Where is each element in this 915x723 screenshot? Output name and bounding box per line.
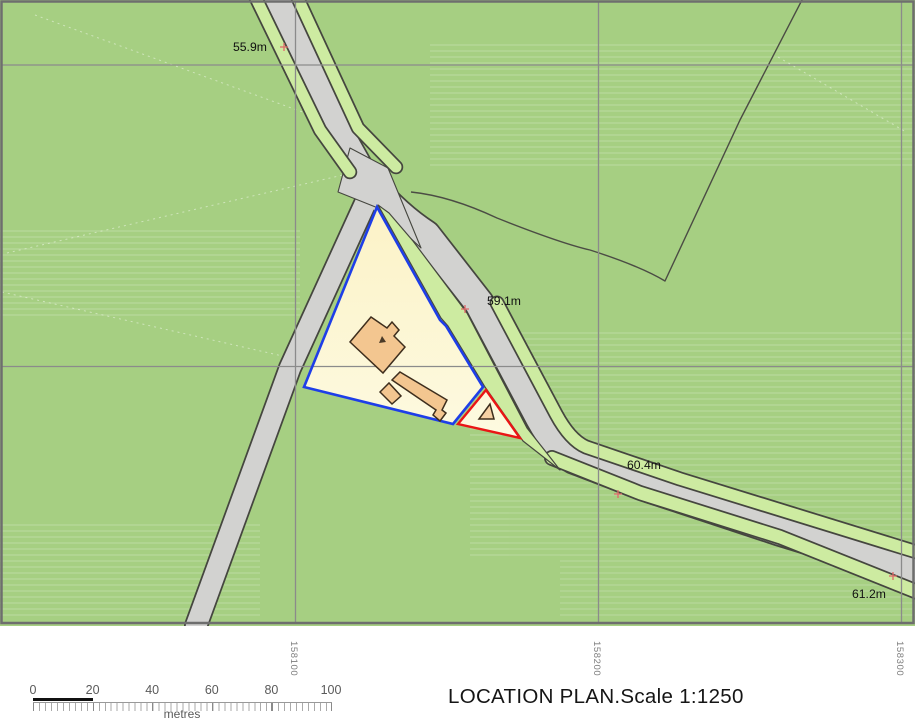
map-title: LOCATION PLAN.Scale 1:1250	[448, 685, 744, 709]
map-canvas: 55.9m 59.1m 60.4m 61.2m	[0, 0, 915, 626]
scale-number: 0	[30, 683, 37, 697]
grid-coordinate-label: 158300	[894, 641, 905, 676]
scale-bar-unit: metres	[164, 707, 201, 721]
scale-number: 60	[205, 683, 219, 697]
grid-coordinate-label: 158100	[288, 641, 299, 676]
scale-number: 80	[264, 683, 278, 697]
grid-coordinate-label: 158200	[591, 641, 602, 676]
spot-height-label: 61.2m	[852, 587, 886, 601]
spot-height-label: 59.1m	[487, 294, 521, 308]
scale-number: 20	[86, 683, 100, 697]
scale-number: 100	[321, 683, 342, 697]
scale-bar-filled-segment	[33, 698, 93, 701]
location-plan-map: 55.9m 59.1m 60.4m 61.2m	[0, 0, 915, 626]
spot-height-label: 55.9m	[233, 40, 267, 54]
scale-bar: 0 20 40 60 80 100 metres	[15, 683, 360, 723]
spot-height-label: 60.4m	[627, 458, 661, 472]
scale-number: 40	[145, 683, 159, 697]
